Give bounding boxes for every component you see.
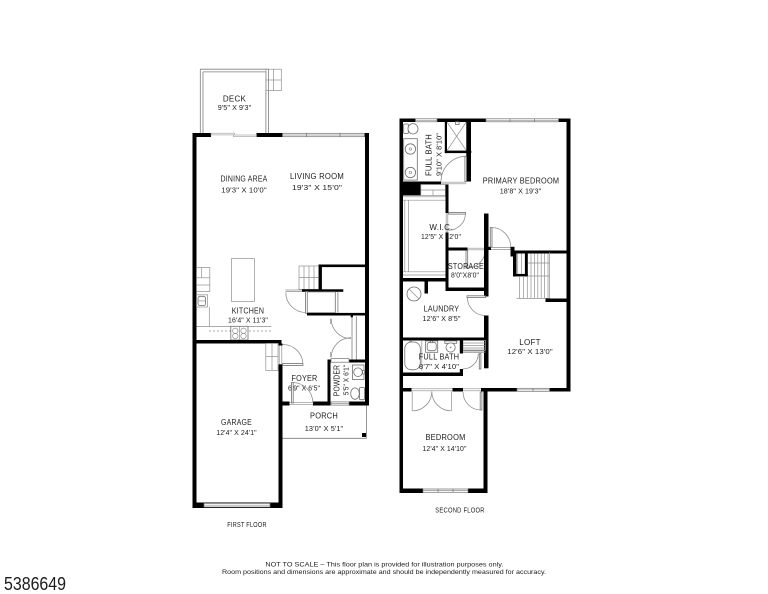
svg-text:5'5" X 6'1": 5'5" X 6'1" — [342, 364, 351, 395]
svg-text:9'5" X 9'3": 9'5" X 9'3" — [218, 103, 252, 112]
svg-text:DINING AREA: DINING AREA — [221, 175, 268, 184]
svg-text:LIVING ROOM: LIVING ROOM — [290, 172, 344, 181]
svg-text:W.I.C.: W.I.C. — [429, 223, 452, 232]
svg-text:19'3" X 10'0": 19'3" X 10'0" — [221, 186, 267, 195]
svg-text:BEDROOM: BEDROOM — [426, 433, 466, 442]
svg-text:NOT TO SCALE – This floor plan: NOT TO SCALE – This floor plan is provid… — [265, 562, 503, 569]
svg-text:9'10" X 8'10": 9'10" X 8'10" — [435, 133, 444, 176]
svg-text:12'5" X 12'0": 12'5" X 12'0" — [421, 232, 461, 241]
svg-text:13'0" X 5'1": 13'0" X 5'1" — [305, 424, 344, 433]
svg-text:FOYER: FOYER — [292, 374, 318, 383]
svg-text:8'0"X8'0": 8'0"X8'0" — [451, 271, 479, 280]
svg-text:FULL BATH: FULL BATH — [419, 353, 460, 362]
svg-text:SECOND FLOOR: SECOND FLOOR — [435, 508, 485, 515]
svg-text:12'4" X 24'1": 12'4" X 24'1" — [216, 428, 257, 437]
svg-text:12'6" X 13'0": 12'6" X 13'0" — [507, 347, 553, 356]
svg-text:POWDER: POWDER — [333, 365, 342, 397]
svg-text:18'8" X 19'3": 18'8" X 19'3" — [500, 187, 542, 196]
svg-text:PORCH: PORCH — [310, 412, 338, 421]
svg-text:8'7" X 4'10": 8'7" X 4'10" — [419, 362, 459, 371]
svg-text:12'6" X 8'5": 12'6" X 8'5" — [423, 314, 461, 323]
svg-text:LOFT: LOFT — [519, 338, 540, 347]
svg-text:KITCHEN: KITCHEN — [232, 307, 265, 316]
svg-text:19'3" X 15'0": 19'3" X 15'0" — [292, 183, 342, 192]
svg-text:Room positions and dimensions: Room positions and dimensions are approx… — [222, 569, 546, 576]
svg-text:FULL BATH: FULL BATH — [425, 134, 434, 176]
svg-text:FIRST FLOOR: FIRST FLOOR — [227, 522, 267, 529]
svg-text:LAUNDRY: LAUNDRY — [424, 305, 460, 314]
svg-text:12'4" X 14'10": 12'4" X 14'10" — [423, 444, 467, 453]
svg-text:GARAGE: GARAGE — [221, 418, 252, 427]
svg-text:5386649: 5386649 — [4, 574, 66, 594]
svg-text:PRIMARY BEDROOM: PRIMARY BEDROOM — [483, 177, 560, 186]
svg-text:16'4" X 11'3": 16'4" X 11'3" — [228, 316, 268, 325]
